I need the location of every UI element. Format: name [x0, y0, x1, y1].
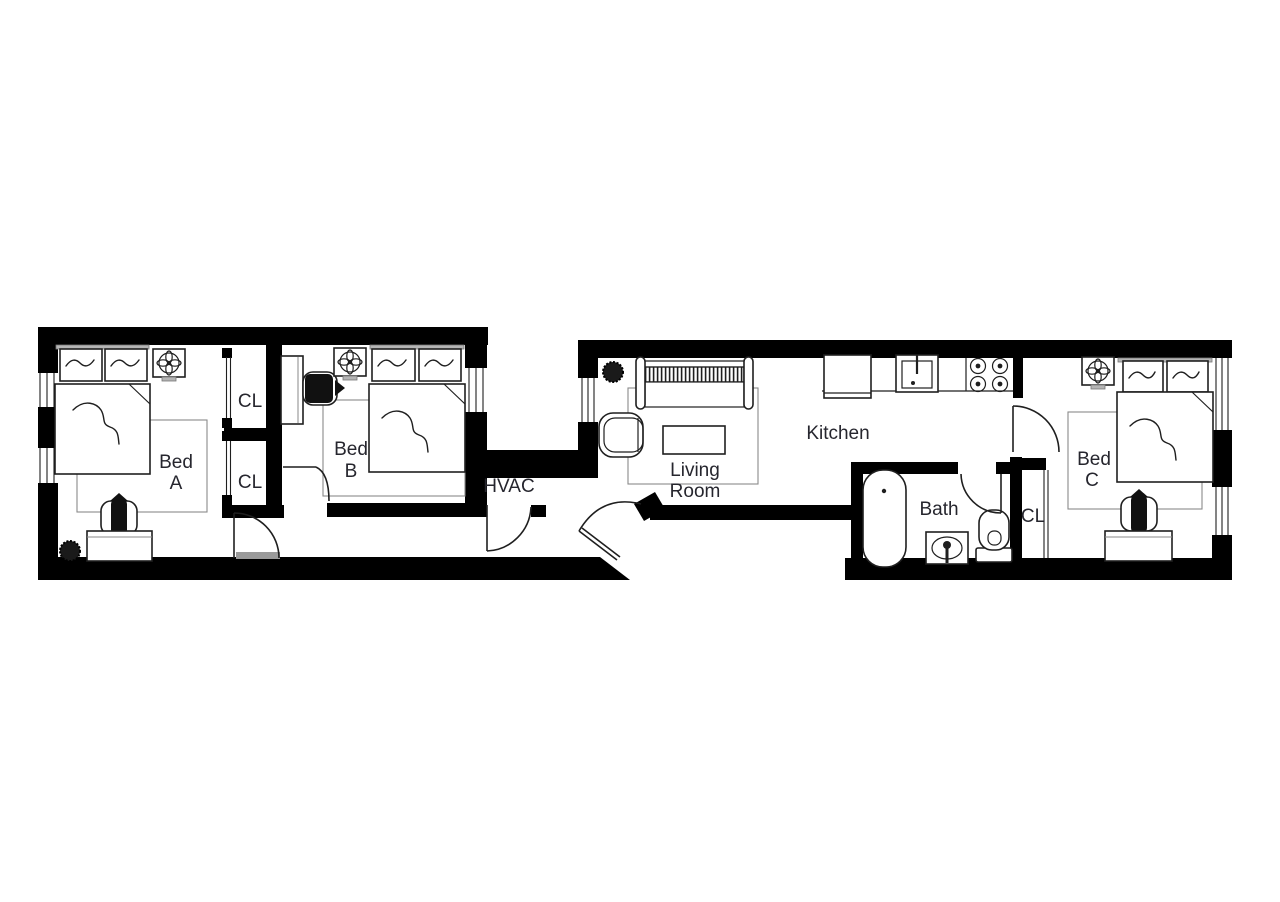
door-bed-c [1013, 406, 1059, 452]
room-bath: Bath [863, 470, 1012, 567]
coffee-table [663, 426, 725, 454]
closet-lower: CL [227, 441, 263, 495]
wall-living-south [650, 505, 862, 520]
closet-jamb [222, 348, 232, 358]
wall-bottom-right-block [845, 558, 1232, 580]
refrigerator [824, 355, 871, 398]
closet-jamb [222, 418, 232, 428]
armchair [599, 413, 643, 457]
room-bed-c: Bed C [1068, 357, 1213, 561]
floor-plan-page: Bed A CL CL [0, 0, 1280, 902]
kitchen-sink [896, 355, 938, 392]
room-living: Living Room [599, 357, 758, 502]
desk [281, 356, 303, 424]
desk [87, 531, 152, 561]
wall-top-left-block [38, 327, 488, 345]
sofa-back [645, 367, 744, 382]
wall-closet-bottom [222, 505, 284, 518]
closet-bath-label: CL [1021, 506, 1045, 527]
room-label-living-2: Room [670, 481, 721, 502]
wall-bath-left [851, 462, 863, 572]
plant-icon [60, 541, 80, 561]
bathtub [863, 470, 906, 567]
pillow [1167, 361, 1208, 392]
door-bed-a [234, 513, 279, 558]
door-threshold [236, 552, 280, 559]
plant-icon [603, 362, 623, 382]
hvac-label: HVAC [483, 476, 534, 497]
room-label-bed-c: Bed [1077, 449, 1111, 470]
room-label-bed-a: Bed [159, 452, 193, 473]
closet-upper: CL [227, 357, 263, 418]
sofa [636, 357, 753, 409]
room-bed-b: Bed B [281, 345, 465, 496]
room-bed-a: Bed A [55, 345, 207, 561]
ceiling-fan-icon [153, 349, 185, 381]
wall-closet-right [266, 345, 282, 518]
pillow [1123, 361, 1163, 392]
window [1211, 487, 1233, 535]
double-bed [1117, 392, 1213, 482]
door-hvac [487, 505, 531, 551]
ceiling-fan-icon [1082, 357, 1114, 389]
room-label-kitchen: Kitchen [806, 423, 869, 444]
room-label-bath: Bath [919, 499, 958, 520]
room-label-living: Living [670, 460, 720, 481]
double-bed [369, 384, 465, 472]
wall-kitchen-east-stub [1013, 358, 1023, 398]
window [464, 368, 488, 412]
wall-closet-bath-top [1022, 458, 1046, 470]
room-label-bed-b: Bed [334, 439, 368, 460]
wall-hvac-jamb [531, 505, 546, 517]
toilet [976, 510, 1012, 562]
door-bed-b [283, 467, 329, 501]
wall-bed-b-south [327, 503, 487, 517]
door-bath [961, 474, 1001, 513]
door-entry [579, 502, 641, 560]
room-label-bed-a-2: A [170, 473, 183, 494]
wall-bath-door-stub [996, 462, 1012, 474]
closet-jamb [222, 431, 232, 441]
sofa-seat [645, 382, 744, 407]
office-chair [1121, 489, 1157, 533]
desk [1105, 531, 1172, 561]
sofa-armrest [744, 357, 753, 409]
closet-lower-label: CL [238, 472, 262, 493]
closet-upper-label: CL [238, 391, 262, 412]
hvac-closet: HVAC [483, 476, 534, 497]
window [577, 378, 599, 422]
window [1211, 358, 1233, 430]
sofa-armrest [636, 357, 645, 409]
floor-plan-drawing: Bed A CL CL [0, 0, 1280, 902]
stove [966, 358, 1008, 392]
bathroom-sink [926, 532, 968, 564]
ceiling-fan-icon [334, 348, 366, 380]
closet-jamb [222, 495, 232, 505]
room-label-bed-c-2: C [1085, 470, 1099, 491]
room-kitchen: Kitchen [806, 355, 1013, 444]
room-label-bed-b-2: B [345, 461, 358, 482]
double-bed [55, 384, 150, 474]
wall-bath-top [851, 462, 958, 474]
closet-bath: CL [1021, 470, 1048, 558]
